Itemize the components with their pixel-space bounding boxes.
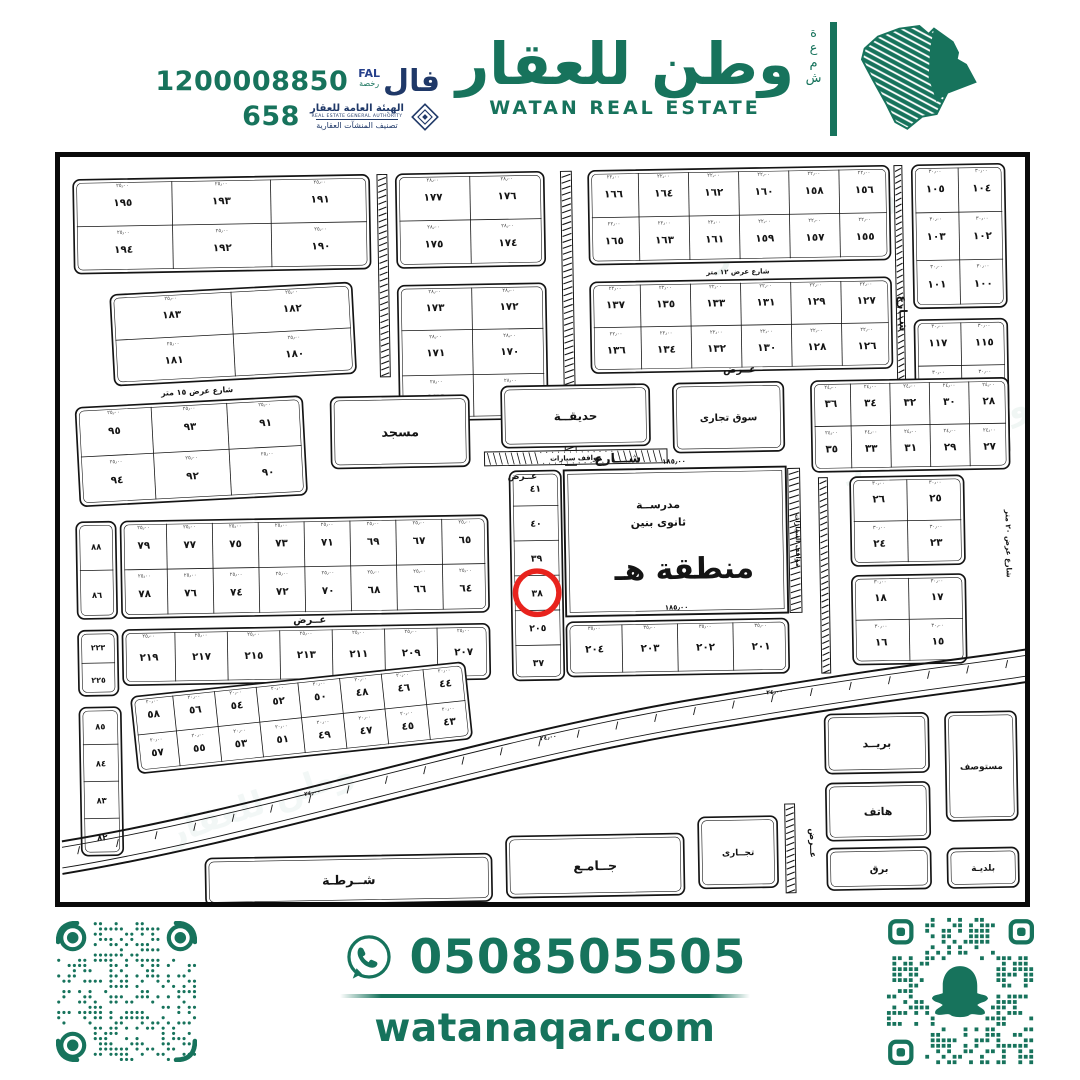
zone-label: منطقة هـ: [613, 551, 754, 587]
plot-dimension: ٢٥٫٠٠: [216, 228, 229, 234]
plot-dimension: ٢٥٫٠٠: [167, 341, 180, 348]
plot-number: ٤٣: [443, 715, 458, 728]
plot-number: ١٣٢: [707, 343, 727, 355]
plot-number: ٩٠: [262, 466, 275, 479]
plot-dimension: ٢٥٫٠٠: [195, 632, 208, 638]
vertical-bar: [830, 22, 837, 136]
plot-number: ٥٢: [272, 695, 287, 708]
facility-block: بريــد: [825, 713, 930, 774]
plot-number: ١٨٣: [162, 308, 182, 321]
street-label: ١٨٥٫٠٠: [662, 457, 686, 465]
plot-number: ٣٣: [865, 443, 879, 455]
plot-dimension: ٢٥٫٠٠: [142, 633, 155, 639]
plot-dimension: ٢٢٫٠٠: [757, 172, 770, 178]
plot-number: ٣٢: [903, 397, 917, 409]
plot-number: ١١٥: [975, 336, 994, 348]
plot-number: ١٧٤: [498, 237, 517, 249]
plot-dimension: ٢٥٫٠٠: [184, 572, 197, 578]
plot-dimension: ٢٤٫٠٠: [943, 383, 956, 389]
plot-dimension: ٣٠٫٠٠: [931, 324, 944, 330]
plot-dimension: ٣٠٫٠٠: [929, 169, 942, 175]
plot-number: ٢٠٧: [454, 646, 474, 658]
plot-dimension: ٢٤٫٠٠: [904, 429, 917, 435]
plot-dimension: ٢٥٫٠٠: [457, 628, 470, 634]
plot-number: ٢٠١: [751, 640, 770, 652]
plot-number: ٥٥: [192, 742, 206, 755]
plot-number: ٢٨: [982, 395, 996, 407]
plot-number: ١٠٣: [927, 231, 947, 243]
street-strip: [785, 804, 796, 893]
facility-block: برق: [827, 847, 931, 890]
plot-dimension: ٢٥٫٠٠: [183, 406, 196, 413]
plot-number: ٤٦: [397, 681, 411, 694]
plot-number: ١٣٥: [656, 298, 675, 310]
school-name-line2: ثانوى بنين: [631, 516, 687, 530]
plot-dimension: ٢٥٫٠٠: [261, 451, 274, 458]
plot-dimension: ٢٢٫٠٠: [809, 282, 822, 288]
plot-number: ٧٣: [275, 537, 289, 549]
plot-number: ٩٥: [108, 425, 121, 438]
plot-number: ١٩٤: [114, 244, 133, 256]
fal-logo-sub: رخصة: [359, 80, 379, 88]
plot-dimension: ٣٠٫٠٠: [977, 263, 990, 269]
plot-dimension: ٣٠٫٠٠: [929, 216, 942, 222]
plot-number: ٨٣: [96, 795, 106, 805]
plot-number: ٢١٥: [244, 650, 263, 662]
street-label: شارع عرض ١٢ متر: [705, 267, 770, 276]
plot-number: ٦٨: [368, 584, 382, 596]
plot-number: ٢٢٣: [91, 643, 106, 652]
plot-number: ٤٠: [530, 519, 542, 530]
plot-block: ٤١٤٠٣٩٣٨٢٠٥٣٧: [509, 470, 564, 680]
plot-dimension: ٢٢٫٠٠: [660, 330, 673, 336]
plot-number: ١٣٦: [607, 344, 626, 356]
street-label: عــرض: [507, 472, 537, 483]
authority-row: 658 الهيئة العامة للعقار REAL ESTATE GEN…: [150, 101, 440, 132]
plot-number: ١٢٩: [807, 295, 827, 307]
plot-number: ٢٠٢: [696, 641, 716, 653]
plot-number: ١٥٧: [805, 232, 825, 244]
website-qr-code: [56, 921, 197, 1062]
plot-number: ١٧٥: [424, 238, 443, 250]
plot-number: ١٧: [931, 591, 945, 603]
facility-block: حديقــة: [501, 384, 650, 448]
authority-logo: الهيئة العامة للعقار REAL ESTATE GENERAL…: [310, 102, 440, 132]
facility-label: مسجد: [381, 425, 419, 441]
plot-block: ٨٨٨٦: [76, 522, 117, 619]
plot-dimension: ٢٢٫٠٠: [807, 171, 820, 177]
street-label: ١٨٥٫٠٠: [665, 603, 689, 611]
plot-dimension: ٢٥٫٠٠: [275, 523, 288, 529]
street-label: عــرض: [293, 615, 326, 627]
plot-number: ٨٥: [95, 721, 105, 731]
plot-number: ١٥٥: [856, 231, 875, 243]
plot-number: ٥٧: [151, 746, 166, 759]
plot-number: ٦٦: [414, 583, 427, 595]
plot-number: ١٦١: [705, 233, 724, 245]
plot-number: ١٣٠: [757, 342, 776, 354]
plot-number: ١٧٣: [425, 302, 445, 314]
facility-label: جــامـع: [573, 859, 617, 875]
plot-dimension: ٢٢٫٠٠: [659, 285, 672, 291]
plot-number: ٧٥: [229, 538, 242, 550]
plot-dimension: ٢٢٫٠٠: [710, 329, 723, 335]
plot-number: ١٥: [932, 635, 945, 647]
plot-number: ٧٤: [230, 586, 243, 598]
plot-number: ١٩٣: [212, 195, 232, 207]
plot-dimension: ٢٢٫٠٠: [759, 283, 772, 289]
plot-dimension: ٢٨٫٠٠: [427, 224, 440, 230]
plot-dimension: ٣٠٫٠٠: [978, 323, 991, 329]
brand-name-arabic: وطن للعقار: [430, 34, 820, 95]
plot-block: ٢٦٣٠٫٠٠٢٥٣٠٫٠٠٢٤٣٠٫٠٠٢٣٣٠٫٠٠: [850, 475, 965, 566]
plot-number: ٣٥: [825, 443, 838, 455]
plot-number: ١٣٧: [606, 299, 626, 311]
plot-dimension: ٢٥٫٠٠: [287, 334, 300, 341]
facility-label: تجــارى: [722, 848, 755, 859]
fal-logo-en: FAL: [358, 68, 380, 79]
plot-dimension: ٢٨٫٠٠: [430, 379, 443, 385]
facility-block: مسجد: [330, 395, 469, 468]
street-label: شـــارع: [594, 451, 641, 467]
plot-number: ١٧٧: [424, 191, 444, 203]
plot-dimension: ٣٥٫٠٠: [699, 624, 712, 630]
plot-number: ١٩٢: [213, 242, 233, 254]
plot-number: ٤٩: [318, 728, 333, 741]
street-label: شــارع: [896, 295, 910, 331]
plot-number: ١٥٦: [855, 184, 874, 196]
real-estate-poster: 1200008850 FAL رخصة فال 658 الهيئة العام…: [0, 0, 1080, 1080]
plot-number: ٢٢٥: [91, 676, 106, 685]
plot-number: ٢٠٥: [529, 623, 547, 634]
plot-number: ١٥٩: [755, 232, 775, 244]
plot-number: ٩١: [259, 417, 272, 430]
plot-block: ٢٢٣٢٢٥: [78, 630, 119, 696]
plot-number: ١٩١: [311, 193, 330, 205]
plot-dimension: ٢٤٫٠٠: [825, 430, 838, 436]
facility-label: شــرطـة: [322, 873, 376, 889]
whatsapp-contact[interactable]: 0508505505: [330, 930, 760, 985]
facility-block: سوق تجارى: [673, 382, 785, 453]
street-strip: [818, 478, 830, 674]
facility-label: مستوصف: [960, 762, 1003, 773]
plot-number: ٤٨: [355, 686, 370, 699]
plot-dimension: ٢٢٫٠٠: [657, 173, 670, 179]
plot-number: ٢٤: [873, 538, 886, 550]
plot-number: ١٨١: [164, 354, 184, 367]
plot-dimension: ٣٠٫٠٠: [978, 369, 991, 375]
plot-number: ٦٤: [459, 582, 472, 594]
plot-number: ٦٥: [459, 534, 472, 546]
facility-block: جــامـع: [506, 833, 685, 897]
plot-dimension: ٣٥٫٠٠: [588, 626, 601, 632]
plot-number: ١٢٦: [857, 340, 876, 352]
plot-dimension: ٢٥٫٠٠: [247, 632, 260, 638]
school-block: مدرســةثانوى بنينمنطقة هـ: [564, 467, 789, 617]
plot-dimension: ٢٢٫٠٠: [608, 221, 621, 227]
plot-dimension: ٣٠٫٠٠: [976, 216, 989, 222]
plot-number: ٨٨: [91, 542, 101, 552]
plot-dimension: ٣٥٫٠٠: [643, 625, 656, 631]
plot-dimension: ٢٥٫٠٠: [215, 181, 228, 187]
plot-number: ١٢٨: [807, 341, 827, 353]
whatsapp-icon: [343, 932, 395, 984]
plot-number: ١٦٢: [704, 186, 724, 198]
plot-dimension: ٣٥٫٠٠: [754, 623, 767, 629]
plot-number: ٢١١: [349, 648, 368, 660]
plot-dimension: ٢٥٫٠٠: [258, 402, 271, 409]
plot-dimension: ٢٥٫٠٠: [458, 519, 471, 525]
plot-dimension: ٢٢٫٠٠: [658, 220, 671, 226]
plot-number: ١٦٠: [754, 186, 773, 198]
plot-number: ٢٠٣: [640, 642, 660, 654]
plot-dimension: ٢٥٫٠٠: [107, 409, 120, 416]
plot-dimension: ٣٠٫٠٠: [975, 168, 988, 174]
plot-number: ٣٩: [531, 553, 543, 564]
facility-block: هاتف: [826, 782, 931, 841]
plot-number: ٢١٩: [139, 652, 159, 664]
plot-number: ١٦٣: [655, 234, 675, 246]
plot-dimension: ٢٥٫٠٠: [185, 455, 198, 462]
plot-dimension: ٢٥٫٠٠: [117, 230, 130, 236]
facility-label: بلديـة: [971, 864, 995, 874]
plot-dimension: ٢٥٫٠٠: [138, 573, 151, 579]
plot-dimension: ٢٥٫٠٠: [314, 226, 327, 232]
plot-dimension: ٢٥٫٠٠: [116, 183, 129, 189]
plot-dimension: ٢٥٫٠٠: [229, 523, 242, 529]
plot-number: ٩٤: [110, 474, 123, 487]
plot-number: ١٧٦: [497, 190, 516, 202]
plot-number: ٢٩: [944, 441, 958, 453]
plot-block: ١٧٧٢٨٫٠٠١٧٦٢٨٫٠٠١٧٥٢٨٫٠٠١٧٤٢٨٫٠٠: [396, 172, 546, 268]
plot-number: ١٣٤: [657, 343, 676, 355]
plot-number: ١٥٨: [805, 185, 825, 197]
plot-dimension: ٢٤٫٠٠: [903, 383, 916, 389]
plot-number: ٣٧: [533, 658, 545, 669]
plot-number: ١٨: [874, 592, 888, 604]
divider-bar: [340, 994, 750, 998]
plot-number: ١٠٢: [973, 230, 993, 242]
authority-subtitle: تصنيف المنشآت العقارية: [316, 119, 398, 130]
street-label: عــرض: [723, 364, 756, 376]
plot-number: ٧٦: [184, 587, 197, 599]
facility-label: سوق تجارى: [700, 412, 758, 424]
plot-dimension: ٢٢٫٠٠: [707, 173, 720, 179]
facility-block: شــرطـة: [205, 854, 492, 902]
street-label: شارع عرض ١٥ متر: [160, 385, 234, 399]
street-strip: [377, 174, 390, 376]
brand-emblem: شمعة: [806, 16, 1006, 146]
plot-number: ٤٤: [439, 677, 453, 690]
plot-dimension: ٢٥٫٠٠: [367, 521, 380, 527]
plot-number: ١٧٠: [500, 346, 519, 358]
facility-label: هاتف: [864, 805, 893, 818]
plot-number: ١٦٥: [605, 235, 624, 247]
plot-number: ٥١: [276, 733, 290, 746]
plot-dimension: ٢٢٫٠٠: [708, 219, 721, 225]
plot-number: ٣٠: [943, 396, 956, 408]
plot-dimension: ٢٥٫٠٠: [413, 568, 426, 574]
fal-license-row: 1200008850 FAL رخصة فال: [150, 66, 440, 97]
plot-block: ١٩٥٢٥٫٠٠١٩٣٢٥٫٠٠١٩١٢٥٫٠٠١٩٤٢٥٫٠٠١٩٢٢٥٫٠٠…: [73, 175, 371, 274]
plot-number: ١٦٦: [604, 188, 623, 200]
plot-number: ٧٩: [137, 540, 151, 552]
plot-number: ١٦: [875, 636, 888, 648]
plot-number: ٧٧: [183, 539, 197, 551]
plot-dimension: ٢٥٫٠٠: [276, 571, 289, 577]
plot-number: ١٩٠: [311, 240, 330, 252]
plot-number: ٨٤: [96, 758, 106, 768]
plot-dimension: ٢٥٫٠٠: [230, 572, 243, 578]
facility-block: بلديـة: [947, 847, 1019, 888]
plot-number: ٥٣: [234, 737, 249, 750]
snapchat-qr-code: [886, 917, 1034, 1065]
website-url[interactable]: watanaqar.com: [330, 1006, 760, 1051]
street-label: عــرض: [807, 828, 818, 858]
facility-label: بريــد: [862, 737, 891, 750]
facility-label: حديقــة: [554, 409, 598, 424]
plot-dimension: ٢٨٫٠٠: [426, 177, 439, 183]
authority-name-ar: الهيئة العامة للعقار: [310, 103, 404, 115]
plot-number: ٧٨: [138, 588, 152, 600]
fal-license-number: 1200008850: [155, 66, 348, 97]
plot-number: ٤١: [530, 484, 542, 495]
plot-number: ١٩٥: [113, 197, 132, 209]
plot-block: ٣٦٢٤٫٠٠٣٤٢٤٫٠٠٣٢٢٤٫٠٠٣٠٢٤٫٠٠٢٨٢٤٫٠٠٣٥٢٤٫…: [811, 378, 1010, 472]
plot-number: ٢٠٤: [585, 643, 604, 655]
plot-dimension: ٢٢٫٠٠: [810, 328, 823, 334]
cadastral-map: وطن للعقاروطن للعقاروطن للعقارمواقف سيار…: [55, 152, 1030, 907]
plot-number: ٢٧: [983, 441, 997, 453]
vertical-word: شمعة: [806, 26, 821, 131]
plot-dimension: ٢٨٫٠٠: [501, 223, 514, 229]
plot-dimension: ٢٨٫٠٠: [500, 176, 513, 182]
plot-number: ٧١: [321, 536, 334, 548]
plot-dimension: ٢٤٫٠٠: [865, 429, 878, 435]
plot-number: ٥٦: [188, 703, 202, 716]
plot-dimension: ٢٢٫٠٠: [760, 329, 773, 335]
plot-number: ١٣٣: [706, 297, 726, 309]
plot-dimension: ٢٢٫٠٠: [610, 331, 623, 337]
plot-dimension: ٢٢٫٠٠: [860, 281, 873, 287]
plot-dimension: ٢٨٫٠٠: [502, 288, 515, 294]
plot-number: ١٠٤: [972, 182, 991, 194]
plot-dimension: ٢٥٫٠٠: [183, 524, 196, 530]
plot-dimension: ٢٢٫٠٠: [808, 218, 821, 224]
plot-block: ١٠٥٣٠٫٠٠١٠٤٣٠٫٠٠١٠٣٣٠٫٠٠١٠٢٣٠٫٠٠١٠١٣٠٫٠٠…: [912, 164, 1007, 309]
plot-dimension: ٢٤٫٠٠: [824, 385, 837, 391]
plot-dimension: ٢٥٫٠٠: [137, 525, 150, 531]
plot-dimension: ٣٠٫٠٠: [929, 480, 942, 486]
plot-dimension: ٢٥٫٠٠: [164, 295, 177, 302]
plot-dimension: ٢٥٫٠٠: [313, 179, 326, 185]
plot-number: ١٨٢: [283, 302, 303, 315]
plot-dimension: ٢٢٫٠٠: [860, 327, 873, 333]
plot-number: ١٣١: [756, 296, 775, 308]
plot-number: ١٠٠: [974, 278, 993, 290]
plot-dimension: ٣٠٫٠٠: [873, 525, 886, 531]
street-label: ٢٤٫٠٠: [540, 734, 557, 743]
plot-block: ١٨٣٠٫٠٠١٧٣٠٫٠٠١٦٣٠٫٠٠١٥٣٠٫٠٠: [852, 574, 967, 665]
plot-dimension: ٢٢٫٠٠: [709, 284, 722, 290]
saudi-map-icon: [846, 16, 1006, 144]
plot-dimension: ٢٤٫٠٠: [983, 427, 996, 433]
plot-number: ٣١: [904, 442, 917, 454]
plot-dimension: ٢٥٫٠٠: [285, 289, 298, 296]
brand-logo: وطن للعقار WATAN REAL ESTATE: [430, 34, 820, 119]
plot-number: ٥٤: [230, 699, 244, 712]
whatsapp-number[interactable]: 0508505505: [409, 930, 746, 985]
facility-label: برق: [870, 864, 889, 875]
plot-dimension: ٢٢٫٠٠: [609, 286, 622, 292]
plot-dimension: ٢٥٫٠٠: [459, 568, 472, 574]
plot-dimension: ٢٢٫٠٠: [858, 217, 871, 223]
plot-dimension: ٣٠٫٠٠: [930, 264, 943, 270]
plot-block: ١٦٦٢٢٫٠٠١٦٤٢٢٫٠٠١٦٢٢٢٫٠٠١٦٠٢٢٫٠٠١٥٨٢٢٫٠٠…: [588, 166, 891, 265]
plot-block: ١٨٣٢٥٫٠٠١٨٢٢٥٫٠٠١٨١٢٥٫٠٠١٨٠٢٥٫٠٠: [110, 282, 356, 385]
plot-dimension: ٢٨٫٠٠: [504, 378, 517, 384]
plot-number: ٢١٣: [297, 649, 317, 661]
map-content: وطن للعقاروطن للعقاروطن للعقارمواقف سيار…: [60, 163, 1025, 902]
plot-number: ٣٦: [825, 398, 838, 410]
plot-dimension: ٣٠٫٠٠: [874, 579, 887, 585]
plot-number: ٧٢: [276, 586, 290, 598]
facility-block: مستوصف: [945, 711, 1018, 821]
plot-number: ١٦٤: [654, 187, 673, 199]
plot-number: ٦٧: [413, 535, 427, 547]
license-block: 1200008850 FAL رخصة فال 658 الهيئة العام…: [150, 66, 440, 132]
plot-number: ١٧٢: [499, 301, 519, 313]
plot-number: ٢٥: [929, 492, 942, 504]
plot-number: ٢٦: [872, 493, 885, 505]
contact-block: 0508505505 watanaqar.com: [330, 930, 760, 1051]
plot-number: ١٧١: [426, 347, 445, 359]
facility-block: تجــارى: [698, 816, 778, 888]
plot-dimension: ٢٢٫٠٠: [607, 174, 620, 180]
plot-number: ٢٣: [930, 537, 944, 549]
plot-dimension: ٢٨٫٠٠: [428, 289, 441, 295]
plot-dimension: ٣٠٫٠٠: [931, 578, 944, 584]
plot-dimension: ٢٨٫٠٠: [429, 334, 442, 340]
plot-number: ٨٦: [92, 590, 102, 600]
plot-dimension: ٢٤٫٠٠: [943, 428, 956, 434]
plot-dimension: ٣٠٫٠٠: [872, 481, 885, 487]
plot-dimension: ٢٨٫٠٠: [503, 333, 516, 339]
plot-dimension: ٢٥٫٠٠: [404, 629, 417, 635]
street-label: مواقف السيارات: [793, 514, 802, 567]
plot-dimension: ٣٠٫٠٠: [930, 524, 943, 530]
plot-dimension: ٢٥٫٠٠: [367, 569, 380, 575]
plot-dimension: ٢٤٫٠٠: [864, 384, 877, 390]
plot-number: ١٢٧: [857, 295, 877, 307]
plot-block: ٩٥٢٥٫٠٠٩٣٢٥٫٠٠٩١٢٥٫٠٠٩٤٢٥٫٠٠٩٢٢٥٫٠٠٩٠٢٥٫…: [75, 396, 307, 506]
plot-number: ١١٧: [928, 337, 948, 349]
plot-number: ٩٢: [186, 470, 200, 483]
plot-number: ٥٠: [314, 690, 328, 703]
plot-number: ٢١٧: [192, 651, 212, 663]
plot-number: ٤٥: [401, 720, 415, 733]
plot-block: ٧٩٢٥٫٠٠٧٧٢٥٫٠٠٧٥٢٥٫٠٠٧٣٢٥٫٠٠٧١٢٥٫٠٠٦٩٢٥٫…: [120, 515, 489, 618]
plot-dimension: ٢٥٫٠٠: [352, 630, 365, 636]
brand-name-english: WATAN REAL ESTATE: [430, 97, 820, 119]
plot-dimension: ٢٥٫٠٠: [321, 522, 334, 528]
plot-number: ٣٨: [531, 588, 543, 599]
plot-block: ٢٠٤٣٥٫٠٠٢٠٣٣٥٫٠٠٢٠٢٣٥٫٠٠٢٠١٣٥٫٠٠: [566, 618, 789, 676]
fal-logo: FAL رخصة فال: [358, 68, 440, 95]
plot-number: ٤٧: [359, 724, 374, 737]
plot-dimension: ٢٥٫٠٠: [412, 520, 425, 526]
plot-number: ١٠١: [927, 278, 946, 290]
